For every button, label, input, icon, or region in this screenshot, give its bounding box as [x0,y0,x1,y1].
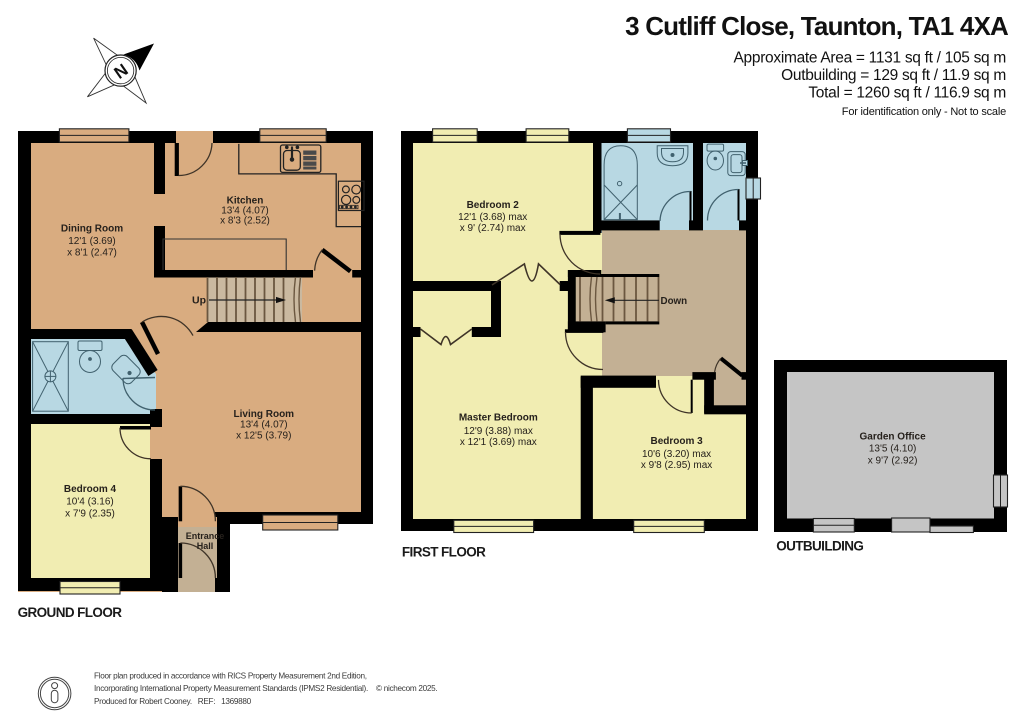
svg-text:x 12'5 (3.79): x 12'5 (3.79) [236,431,291,442]
svg-text:Garden Office: Garden Office [860,432,927,443]
svg-text:Master Bedroom: Master Bedroom [459,413,538,424]
svg-text:Bedroom 3: Bedroom 3 [650,436,703,447]
svg-text:Bedroom 4: Bedroom 4 [64,484,117,495]
svg-text:10'6 (3.20) max: 10'6 (3.20) max [642,449,711,460]
svg-text:12'9 (3.88) max: 12'9 (3.88) max [464,426,533,437]
svg-text:x 8'3 (2.52): x 8'3 (2.52) [220,216,270,227]
svg-text:Incorporating International Pr: Incorporating International Property Mea… [94,684,368,693]
svg-text:12'1 (3.69): 12'1 (3.69) [68,236,116,247]
svg-text:Bedroom 2: Bedroom 2 [467,200,520,211]
svg-text:x 9'7 (2.92): x 9'7 (2.92) [868,455,918,466]
svg-text:Hall: Hall [197,541,214,551]
svg-text:Down: Down [661,296,688,307]
svg-text:Total = 1260 sq ft / 116.9 sq: Total = 1260 sq ft / 116.9 sq m [808,85,1006,102]
svg-text:For identification only - Not: For identification only - Not to scale [842,106,1006,118]
svg-text:Outbuilding = 129 sq ft / 11.9: Outbuilding = 129 sq ft / 11.9 sq m [781,67,1006,84]
svg-text:Approximate Area = 1131 sq ft: Approximate Area = 1131 sq ft / 105 sq m [734,50,1006,67]
svg-text:3 Cutliff Close, Taunton, TA1: 3 Cutliff Close, Taunton, TA1 4XA [625,11,1009,41]
svg-text:x 9' (2.74) max: x 9' (2.74) max [460,223,526,234]
svg-text:13'4 (4.07): 13'4 (4.07) [240,420,288,431]
svg-text:x 7'9 (2.35): x 7'9 (2.35) [65,509,115,520]
svg-text:© nichecom 2025.: © nichecom 2025. [376,684,437,693]
svg-text:x 8'1 (2.47): x 8'1 (2.47) [67,248,117,259]
svg-text:12'1 (3.68) max: 12'1 (3.68) max [458,212,527,223]
svg-text:FIRST FLOOR: FIRST FLOOR [402,545,486,560]
svg-text:OUTBUILDING: OUTBUILDING [776,538,863,553]
svg-text:10'4 (3.16): 10'4 (3.16) [66,497,114,508]
svg-text:x 12'1 (3.69) max: x 12'1 (3.69) max [460,437,537,448]
svg-text:Living Room: Living Room [234,409,295,420]
svg-text:Floor plan produced in accorda: Floor plan produced in accordance with R… [94,671,367,680]
svg-text:Up: Up [192,294,206,306]
svg-text:13'5 (4.10): 13'5 (4.10) [869,444,917,455]
svg-text:GROUND FLOOR: GROUND FLOOR [18,605,123,620]
svg-text:Produced for Robert Cooney.: Produced for Robert Cooney. REF: 1369880 [94,697,252,706]
svg-text:Dining Room: Dining Room [61,224,123,235]
svg-text:x 9'8 (2.95) max: x 9'8 (2.95) max [641,460,712,471]
svg-text:Entrance: Entrance [186,531,225,541]
